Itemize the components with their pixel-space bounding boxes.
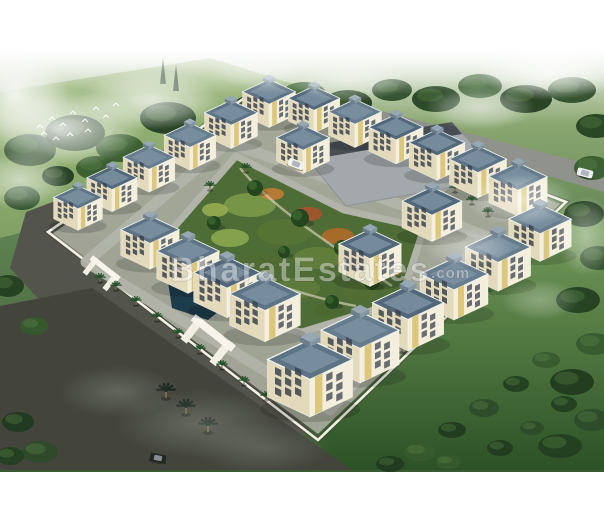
tree-highlight: [580, 335, 600, 346]
tree-highlight: [490, 442, 504, 450]
accent-strip: [269, 305, 275, 339]
palm-crown: [156, 315, 159, 318]
tree-highlight: [554, 372, 578, 385]
watermark: BharatEstates.com: [170, 251, 470, 289]
tree-highlight: [438, 456, 452, 463]
tree-highlight: [542, 436, 566, 448]
accent-strip: [502, 258, 508, 290]
smoke-cloud: [192, 422, 332, 474]
tree-highlight: [472, 401, 489, 410]
palm-crown: [115, 284, 118, 287]
tree-highlight: [379, 458, 394, 466]
accent-strip: [317, 107, 322, 132]
tree-highlight: [578, 411, 598, 422]
garden-tree-highlight: [326, 296, 334, 304]
palm-crown: [199, 347, 202, 350]
tree-highlight: [535, 354, 550, 362]
tree-highlight: [407, 445, 425, 454]
mist-cloud: [423, 228, 513, 268]
garden-tree-highlight: [208, 217, 216, 225]
accent-strip: [412, 314, 418, 349]
palm-crown: [243, 379, 246, 382]
accent-strip: [440, 152, 445, 179]
garden-patch: [211, 229, 249, 247]
palm-crown: [99, 276, 102, 279]
real-estate-aerial-photo: BharatEstates.com: [0, 0, 604, 520]
accent-strip: [234, 121, 239, 147]
mist-cloud: [80, 70, 220, 130]
accent-strip: [315, 373, 323, 414]
mist-cloud: [500, 280, 580, 320]
tree-highlight: [23, 319, 38, 328]
aerial-render-svg: BharatEstates.com: [0, 0, 604, 520]
accent-strip: [272, 100, 277, 126]
garden-tree-highlight: [248, 181, 257, 190]
tree-highlight: [5, 414, 23, 424]
palm-crown: [221, 363, 224, 366]
tree-highlight: [26, 443, 46, 454]
tree-highlight: [554, 398, 568, 406]
accent-strip: [115, 186, 119, 210]
palm-crown: [209, 184, 212, 187]
frame-bottom: [0, 472, 604, 520]
accent-strip: [544, 229, 550, 259]
watermark-main: BharatEstates: [170, 251, 431, 289]
accent-strip: [399, 136, 404, 162]
accent-strip: [152, 166, 157, 191]
garden-patch: [202, 203, 228, 217]
smoke-cloud: [58, 366, 178, 418]
accent-strip: [365, 343, 372, 381]
palm-crown: [245, 166, 248, 169]
mist-cloud: [465, 174, 575, 226]
palm-crown: [177, 331, 180, 334]
tree-highlight: [506, 378, 520, 386]
garden-tree-highlight: [292, 210, 302, 220]
tree-highlight: [441, 424, 456, 432]
palm-crown: [265, 394, 268, 397]
palm-crown: [135, 299, 138, 302]
accent-strip: [193, 144, 198, 169]
accent-strip: [306, 146, 311, 172]
accent-strip: [458, 285, 464, 318]
mist-cloud: [425, 86, 535, 130]
mist-cloud: [210, 52, 310, 88]
tree-highlight: [522, 422, 535, 429]
mist-cloud: [290, 58, 410, 102]
watermark-suffix: .com: [431, 265, 470, 282]
tree-highlight: [580, 116, 602, 128]
accent-strip: [358, 120, 363, 146]
frame-top: [0, 0, 604, 48]
accent-strip: [81, 205, 85, 229]
